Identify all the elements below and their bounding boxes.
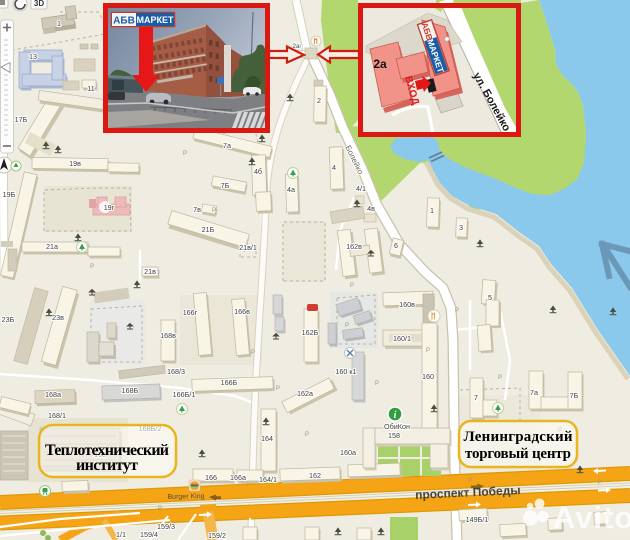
svg-text:4: 4 [332, 163, 336, 172]
svg-text:162: 162 [309, 471, 321, 480]
svg-text:P: P [90, 264, 94, 270]
svg-text:АБВ: АБВ [113, 16, 135, 27]
svg-text:159/4: 159/4 [140, 530, 158, 539]
svg-text:P: P [455, 308, 459, 314]
svg-text:19в: 19в [69, 159, 81, 168]
svg-text:168/3: 168/3 [167, 367, 185, 376]
svg-text:160: 160 [422, 372, 434, 381]
svg-text:МАРКЕТ: МАРКЕТ [137, 15, 174, 25]
svg-text:159/3: 159/3 [157, 522, 175, 531]
svg-text:160а: 160а [340, 448, 356, 457]
svg-text:7в: 7в [193, 205, 201, 214]
svg-text:21в: 21в [144, 267, 156, 276]
svg-text:166а: 166а [230, 473, 246, 482]
svg-text:11: 11 [87, 84, 94, 93]
svg-text:7Б: 7Б [570, 391, 579, 400]
svg-text:166Б: 166Б [221, 378, 238, 387]
svg-text:159/2: 159/2 [208, 531, 226, 540]
svg-text:164: 164 [261, 434, 273, 443]
svg-text:3: 3 [459, 223, 463, 232]
svg-text:168/1: 168/1 [48, 411, 66, 420]
svg-text:1/1: 1/1 [116, 530, 126, 539]
svg-text:1: 1 [430, 206, 434, 215]
svg-text:торговый центр: торговый центр [465, 446, 571, 462]
svg-text:21в/1: 21в/1 [239, 243, 257, 252]
svg-text:Ленинградский: Ленинградский [464, 429, 573, 445]
svg-text:4б: 4б [254, 167, 262, 176]
svg-text:162в: 162в [346, 242, 362, 251]
svg-text:166Б/1: 166Б/1 [173, 390, 196, 399]
svg-text:7: 7 [474, 393, 478, 402]
svg-text:162Б: 162Б [302, 328, 319, 337]
svg-text:168а: 168а [45, 390, 61, 399]
svg-text:21Б: 21Б [202, 225, 215, 234]
svg-text:P: P [468, 478, 472, 484]
svg-text:i: i [394, 410, 397, 421]
svg-text:4/1: 4/1 [356, 184, 366, 193]
svg-text:P: P [598, 480, 602, 486]
svg-text:13: 13 [29, 52, 37, 61]
svg-text:7а: 7а [223, 141, 231, 150]
svg-text:P: P [251, 350, 255, 356]
svg-text:3D: 3D [34, 0, 44, 8]
svg-text:166в: 166в [234, 307, 250, 316]
svg-text:2: 2 [317, 96, 321, 105]
svg-text:ОбиКон: ОбиКон [384, 422, 410, 431]
svg-text:19Б: 19Б [3, 190, 16, 199]
svg-text:Burger King: Burger King [167, 493, 204, 501]
svg-text:23в: 23в [52, 313, 64, 322]
svg-text:P: P [498, 375, 502, 381]
svg-text:21а: 21а [46, 242, 58, 251]
svg-text:166: 166 [205, 473, 217, 482]
svg-text:149Б/1: 149Б/1 [466, 515, 489, 524]
svg-text:158: 158 [388, 431, 400, 440]
svg-text:P: P [426, 348, 430, 354]
svg-text:6: 6 [394, 241, 398, 250]
svg-text:P: P [212, 208, 216, 214]
svg-text:164/1: 164/1 [259, 475, 277, 484]
svg-text:P: P [158, 506, 162, 512]
svg-text:5: 5 [488, 293, 492, 302]
svg-text:P: P [375, 381, 379, 387]
svg-text:19г: 19г [104, 203, 115, 212]
svg-text:160 к1: 160 к1 [335, 367, 356, 376]
svg-text:23Б: 23Б [2, 315, 15, 324]
svg-text:7а: 7а [530, 388, 538, 397]
svg-text:P: P [183, 151, 187, 157]
svg-text:7Б: 7Б [221, 181, 230, 190]
svg-text:160/1: 160/1 [393, 334, 411, 343]
svg-text:P: P [305, 432, 309, 438]
svg-text:P: P [350, 283, 354, 289]
svg-text:162а: 162а [297, 389, 313, 398]
svg-text:168в: 168в [160, 331, 176, 340]
svg-text:Avito: Avito [553, 500, 630, 535]
svg-text:P: P [276, 386, 280, 392]
svg-text:институт: институт [76, 457, 138, 474]
svg-text:2а: 2а [373, 57, 387, 71]
svg-text:168Б: 168Б [122, 386, 139, 395]
svg-text:17Б: 17Б [15, 115, 28, 124]
svg-text:160в: 160в [399, 300, 415, 309]
svg-text:166г: 166г [183, 308, 198, 317]
svg-text:1: 1 [57, 19, 61, 28]
svg-text:4в: 4в [367, 204, 375, 213]
svg-text:P: P [345, 323, 349, 329]
svg-text:4а: 4а [287, 185, 295, 194]
